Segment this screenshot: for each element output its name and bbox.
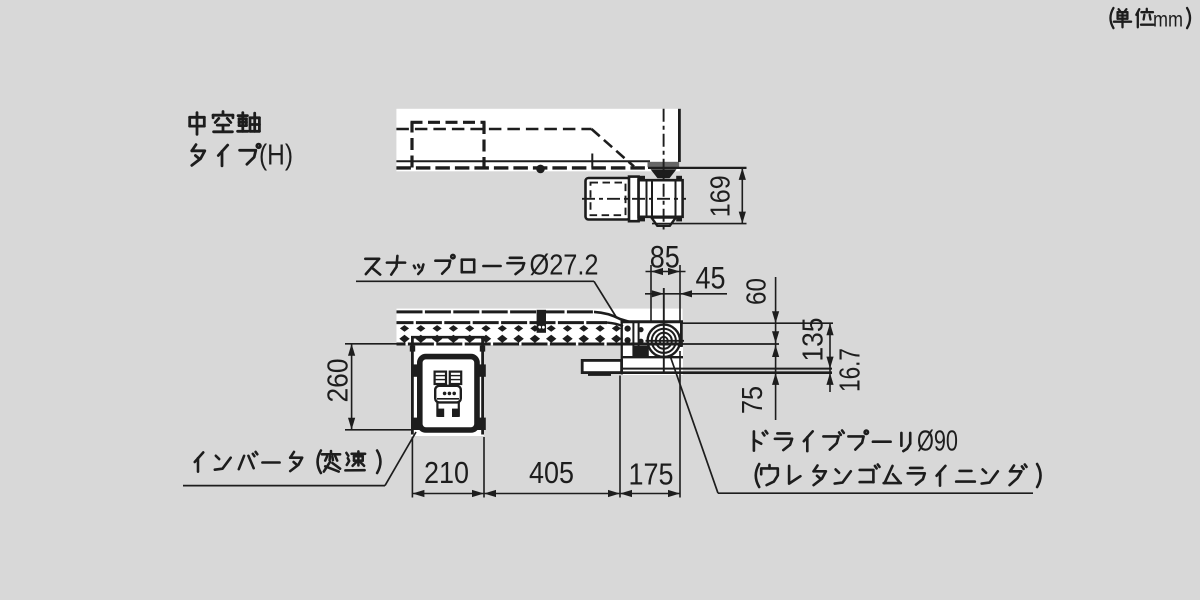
svg-text:135: 135	[798, 318, 830, 362]
svg-text:85: 85	[650, 239, 680, 275]
svg-text:60: 60	[741, 278, 772, 305]
svg-text:210: 210	[424, 455, 469, 490]
svg-text:169: 169	[704, 175, 735, 217]
svg-text:Ø27.2: Ø27.2	[530, 250, 599, 282]
svg-text:mm: mm	[1153, 8, 1183, 32]
svg-text:16.7: 16.7	[835, 348, 867, 392]
svg-text:175: 175	[629, 457, 674, 492]
svg-text:260: 260	[323, 359, 355, 403]
svg-text:45: 45	[696, 260, 726, 296]
svg-text:405: 405	[529, 455, 574, 490]
svg-text:75: 75	[737, 386, 769, 414]
svg-text:Ø90: Ø90	[917, 426, 958, 458]
svg-text:(H): (H)	[259, 140, 293, 172]
